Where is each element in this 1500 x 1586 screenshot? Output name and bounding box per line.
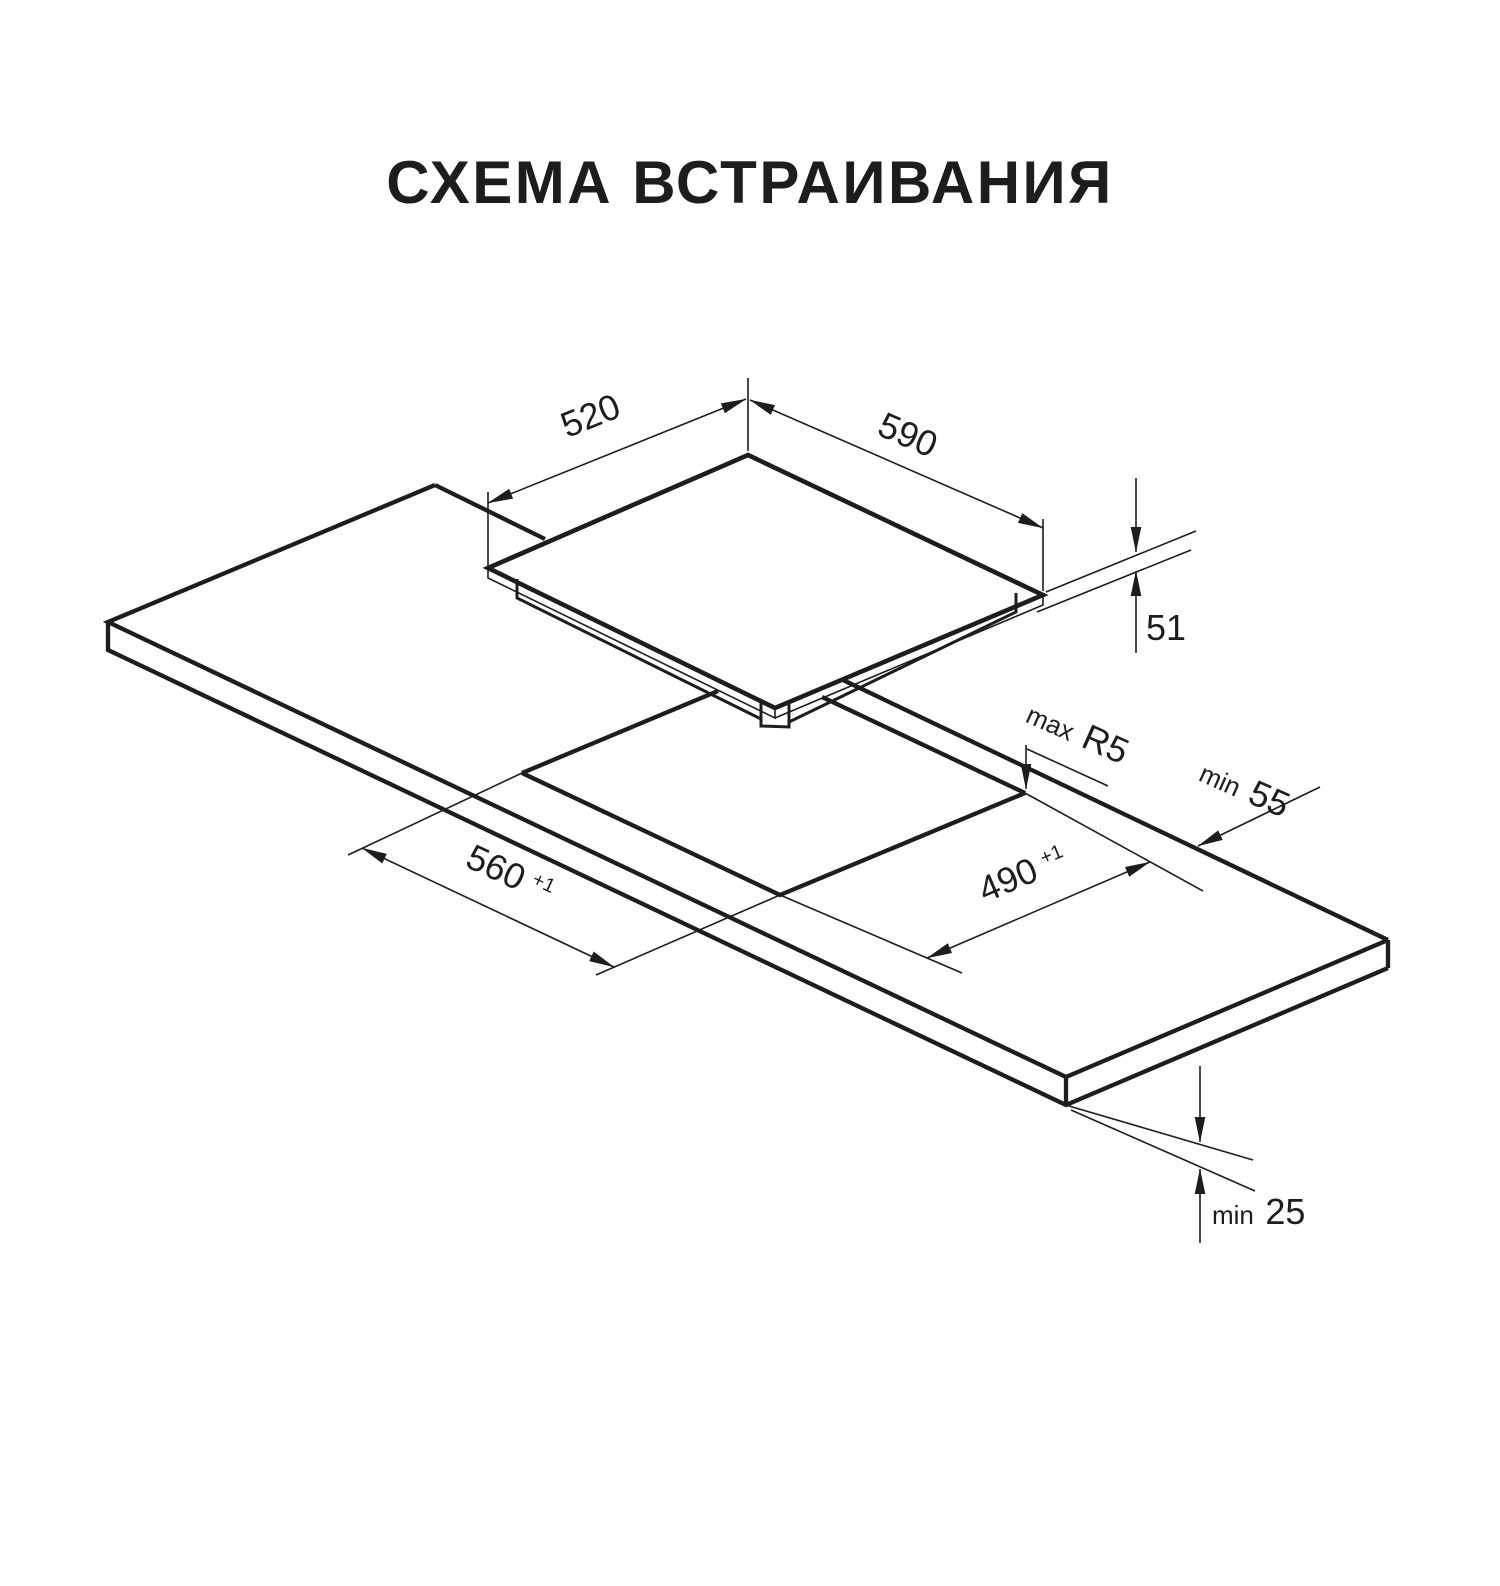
dim-hob-height-extensions xyxy=(1037,531,1196,612)
installation-diagram-page: СХЕМА ВСТРАИВАНИЯ xyxy=(0,0,1500,1586)
dim-corner-radius-label: max R5 xyxy=(1021,691,1135,772)
hob-outline xyxy=(488,455,1043,727)
dim-cutout-width-label: 560 +1 xyxy=(460,836,560,912)
dim-cutout-width: 560 +1 xyxy=(348,773,780,975)
worktop-cutout-outline xyxy=(522,691,1025,895)
dim-bottom-clearance: min 25 xyxy=(1069,1066,1305,1243)
dim-rear-clearance-label: min 55 xyxy=(1194,750,1296,825)
installation-drawing: 520 590 51 560 +1 xyxy=(0,0,1500,1586)
dim-cutout-depth-label: 490 +1 xyxy=(972,837,1072,910)
dim-hob-depth-label: 520 xyxy=(555,385,626,446)
worktop-outline xyxy=(108,485,1388,1105)
hob-glass-top xyxy=(488,455,1043,708)
dim-hob-width: 590 xyxy=(750,400,1043,591)
dim-cutout-width-extensions xyxy=(348,773,780,975)
dim-hob-width-label: 590 xyxy=(872,404,943,466)
dim-hob-height-label: 51 xyxy=(1146,607,1186,648)
dim-rear-clearance: min 55 xyxy=(1194,750,1320,846)
dim-hob-height: 51 xyxy=(1037,478,1196,653)
dim-bottom-clearance-extensions xyxy=(1069,1106,1255,1191)
hob-glass-edge xyxy=(488,568,1043,718)
cutout-front-edges xyxy=(522,773,1025,895)
dim-bottom-clearance-label: min 25 xyxy=(1212,1191,1305,1232)
